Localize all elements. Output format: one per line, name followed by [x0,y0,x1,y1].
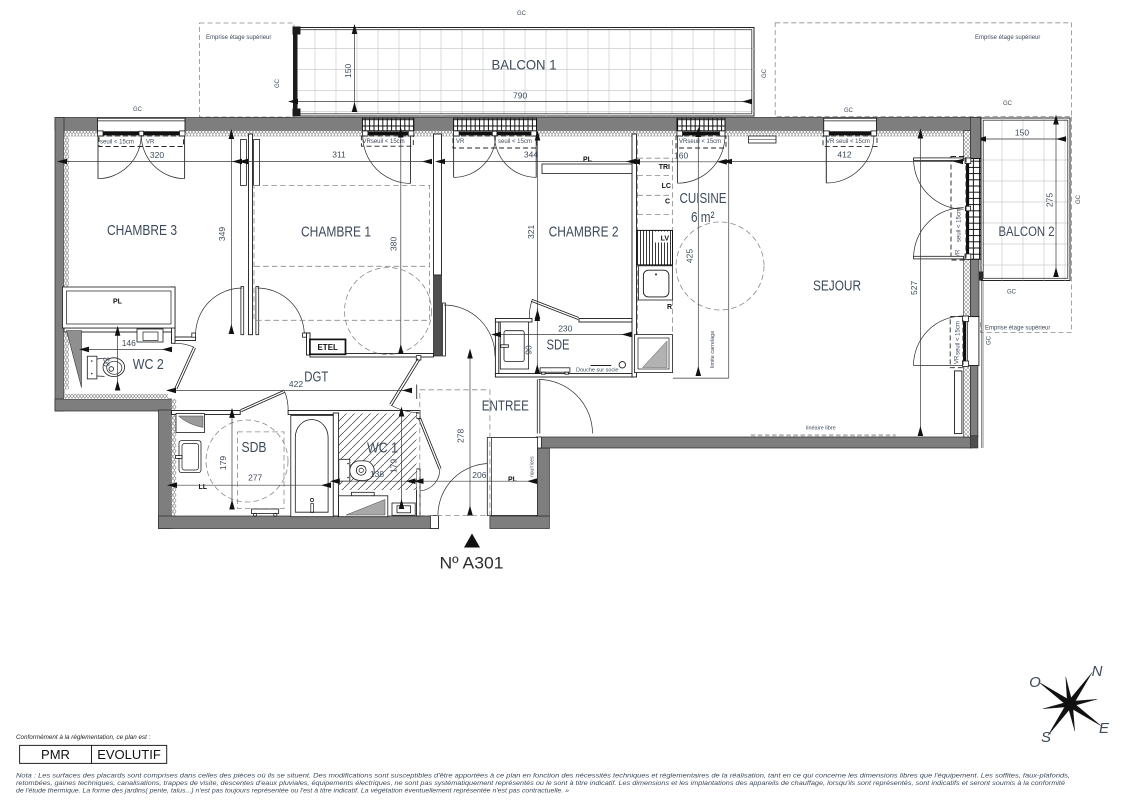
svg-text:seuil < 15cm: seuil < 15cm [956,321,962,355]
svg-text:GC: GC [1007,290,1017,296]
svg-text:VR seuil < 15cm: VR seuil < 15cm [826,139,870,145]
svg-text:PL: PL [583,157,593,164]
svg-text:TRI: TRI [659,164,670,171]
svg-text:Emprise étage supérieur: Emprise étage supérieur [975,35,1040,41]
svg-text:VRseuil < 15cm: VRseuil < 15cm [679,139,721,145]
svg-text:GC: GC [987,335,993,345]
svg-text:DGT: DGT [304,369,328,386]
svg-text:E: E [1099,720,1110,737]
svg-text:seuil < 15cm: seuil < 15cm [100,140,134,146]
svg-text:Douche sur socle: Douche sur socle [576,368,619,374]
svg-text:linéaire libre: linéaire libre [806,426,836,432]
svg-text:BALCON 2: BALCON 2 [999,224,1055,239]
svg-text:206: 206 [472,470,486,480]
svg-text:limite carrelage: limite carrelage [710,331,716,368]
svg-text:LC: LC [662,183,671,190]
svg-text:PL: PL [113,299,123,306]
svg-text:150: 150 [343,64,353,78]
svg-text:GC: GC [844,108,854,114]
svg-text:PL: PL [508,477,518,484]
svg-text:93: 93 [102,357,112,367]
svg-text:GC: GC [762,68,768,78]
svg-text:179: 179 [389,459,399,473]
svg-text:321: 321 [526,225,536,239]
svg-text:278: 278 [456,429,466,443]
svg-text:PMR: PMR [41,747,70,762]
svg-text:N: N [1092,663,1103,680]
svg-text:GC: GC [517,11,527,17]
svg-text:6 m²: 6 m² [691,209,715,226]
svg-text:320: 320 [150,150,164,160]
svg-text:CHAMBRE 2: CHAMBRE 2 [549,224,619,241]
svg-text:LV: LV [661,236,670,243]
svg-text:344: 344 [524,150,538,160]
svg-text:EVOLUTIF: EVOLUTIF [97,747,161,762]
svg-text:seuil < 15cm: seuil < 15cm [957,208,963,242]
svg-text:SDE: SDE [547,337,570,354]
svg-text:422: 422 [289,379,303,389]
svg-text:Conformément à la réglementati: Conformément à la réglementation, ce pla… [16,734,151,741]
svg-text:VR: VR [146,140,155,146]
svg-text:BALCON 1: BALCON 1 [492,57,557,73]
svg-text:retombées, gaines techniques,: retombées, gaines techniques, canalisati… [16,780,1066,787]
svg-text:527: 527 [909,281,919,295]
svg-text:de l'étude thermique. La forme: de l'étude thermique. La forme des jardi… [16,788,570,795]
svg-text:C: C [665,199,670,206]
svg-text:277: 277 [248,473,262,483]
svg-text:GC: GC [1076,194,1082,204]
svg-text:150: 150 [1015,128,1029,138]
svg-text:CHAMBRE 1: CHAMBRE 1 [301,224,371,241]
svg-text:ETEL: ETEL [317,343,338,352]
svg-text:275: 275 [1045,193,1055,207]
svg-text:seuil < 15cm: seuil < 15cm [498,139,532,145]
svg-text:S: S [1041,729,1051,746]
svg-text:412: 412 [837,150,851,160]
svg-text:790: 790 [513,91,527,101]
svg-text:380: 380 [389,237,399,251]
svg-text:425: 425 [685,249,695,263]
svg-text:Nota : Les surfaces des placar: Nota : Les surfaces des placards sont co… [16,773,1070,780]
svg-text:ENTREE: ENTREE [482,398,529,415]
svg-text:O: O [1029,674,1041,691]
svg-text:GC: GC [1003,101,1013,107]
svg-text:146: 146 [122,338,136,348]
svg-text:VRseuil < 15cm: VRseuil < 15cm [363,139,405,145]
svg-text:VR: VR [456,139,465,145]
svg-text:SEJOUR: SEJOUR [813,278,861,295]
svg-text:WC 1: WC 1 [367,440,398,457]
svg-text:WC 2: WC 2 [133,356,164,373]
svg-text:Nº A301: Nº A301 [440,554,504,573]
svg-text:160: 160 [674,151,688,161]
svg-text:SDB: SDB [242,439,267,456]
svg-text:R: R [667,304,672,311]
svg-text:349: 349 [217,227,227,241]
svg-text:90: 90 [524,345,534,355]
svg-text:GC: GC [275,78,281,88]
svg-text:138: 138 [370,469,384,479]
svg-text:179: 179 [218,456,228,470]
svg-text:GC: GC [133,107,143,113]
svg-text:Emprise étage supérieur: Emprise étage supérieur [206,35,271,41]
svg-text:230: 230 [558,323,572,333]
svg-text:CHAMBRE 3: CHAMBRE 3 [107,222,177,239]
svg-text:nourrices: nourrices [530,456,536,477]
svg-text:Emprise étage supérieur: Emprise étage supérieur [985,326,1050,332]
svg-text:311: 311 [332,150,346,160]
svg-text:VR: VR [955,355,961,364]
svg-text:CUISINE: CUISINE [680,190,727,207]
